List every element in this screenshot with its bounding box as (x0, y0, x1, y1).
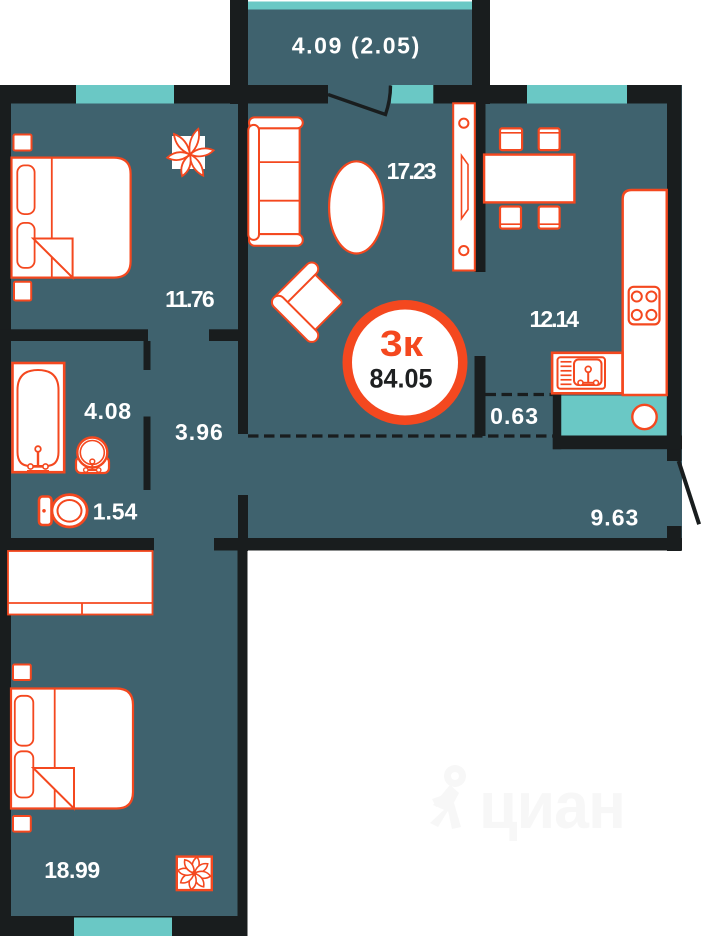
svg-text:18.99: 18.99 (44, 857, 100, 883)
svg-text:17.23: 17.23 (387, 158, 437, 184)
svg-text:9.63: 9.63 (590, 505, 638, 531)
svg-text:4.08: 4.08 (84, 398, 131, 424)
svg-text:0.63: 0.63 (490, 403, 538, 429)
svg-text:84.05: 84.05 (370, 363, 433, 393)
svg-text:3к: 3к (380, 323, 424, 364)
svg-text:4.09 (2.05): 4.09 (2.05) (292, 33, 420, 59)
svg-text:циан: циан (479, 768, 625, 842)
svg-text:1.54: 1.54 (93, 499, 138, 525)
svg-text:11.76: 11.76 (165, 286, 215, 312)
svg-text:12.14: 12.14 (530, 306, 580, 332)
svg-text:3.96: 3.96 (175, 419, 223, 445)
